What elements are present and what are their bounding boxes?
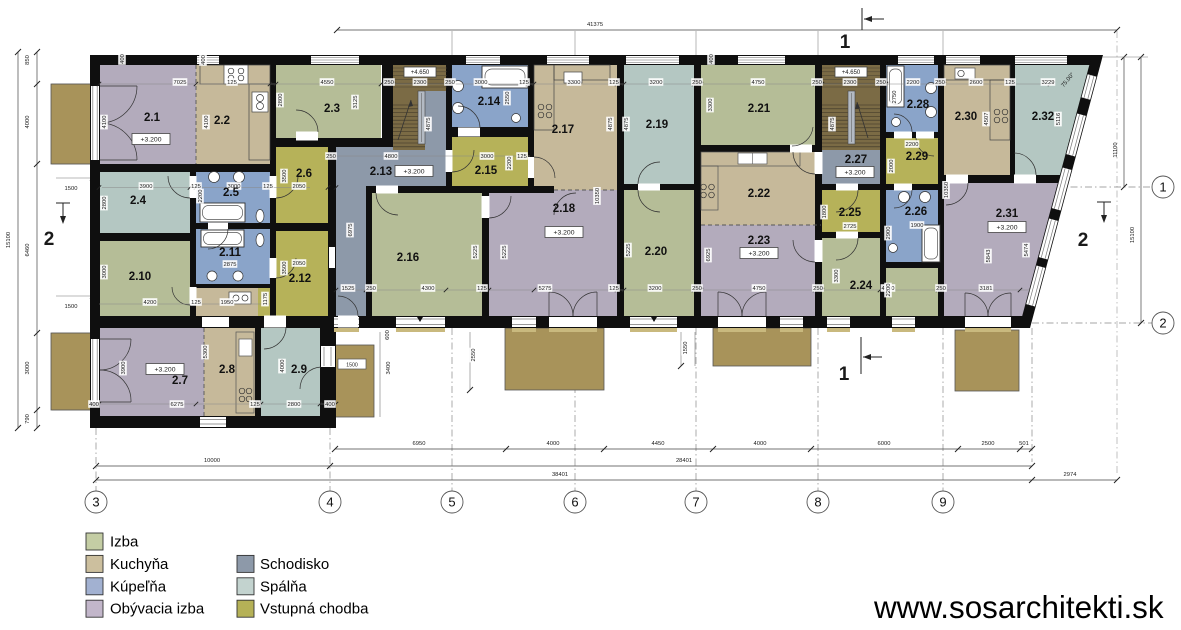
- svg-text:6275: 6275: [171, 402, 184, 408]
- svg-text:28401: 28401: [676, 458, 692, 464]
- svg-text:2.13: 2.13: [370, 166, 392, 178]
- svg-text:4450: 4450: [652, 441, 665, 447]
- svg-text:850: 850: [25, 55, 31, 65]
- svg-text:3400: 3400: [386, 362, 392, 375]
- svg-text:2.32: 2.32: [1032, 111, 1054, 123]
- svg-text:2.19: 2.19: [646, 119, 668, 131]
- svg-text:250: 250: [876, 80, 886, 86]
- svg-text:2.21: 2.21: [748, 103, 771, 115]
- svg-text:501: 501: [1019, 441, 1029, 447]
- svg-text:2300: 2300: [844, 80, 857, 86]
- svg-text:2: 2: [1159, 316, 1166, 331]
- svg-text:400: 400: [201, 55, 207, 65]
- svg-text:2800: 2800: [102, 197, 108, 210]
- svg-text:6000: 6000: [878, 441, 891, 447]
- svg-text:2.1: 2.1: [144, 112, 161, 124]
- svg-text:2.5: 2.5: [223, 187, 240, 199]
- svg-text:www.sosarchitekti.sk: www.sosarchitekti.sk: [873, 590, 1164, 625]
- svg-text:3: 3: [92, 495, 99, 510]
- svg-text:+3.200: +3.200: [155, 366, 176, 373]
- svg-text:2800: 2800: [288, 402, 301, 408]
- svg-text:1: 1: [1159, 180, 1166, 195]
- svg-text:2550: 2550: [505, 92, 511, 105]
- svg-text:2200: 2200: [907, 80, 920, 86]
- svg-text:Vstupná chodba: Vstupná chodba: [260, 601, 369, 618]
- svg-text:125: 125: [191, 300, 201, 306]
- svg-text:2200: 2200: [886, 284, 892, 297]
- svg-text:125: 125: [519, 80, 529, 86]
- svg-text:6460: 6460: [25, 244, 31, 257]
- svg-text:125: 125: [1005, 80, 1015, 86]
- svg-text:4875: 4875: [624, 118, 630, 131]
- svg-text:5225: 5225: [502, 246, 508, 259]
- svg-text:790: 790: [25, 414, 31, 424]
- svg-text:4875: 4875: [608, 118, 614, 131]
- svg-text:2.22: 2.22: [748, 188, 770, 200]
- svg-text:1: 1: [840, 32, 851, 53]
- svg-text:2500: 2500: [982, 441, 995, 447]
- svg-text:1950: 1950: [221, 300, 234, 306]
- svg-text:11100: 11100: [1113, 142, 1119, 157]
- svg-text:2: 2: [1078, 230, 1089, 251]
- svg-text:400: 400: [120, 54, 126, 64]
- svg-text:2.23: 2.23: [748, 235, 770, 247]
- svg-text:15100: 15100: [6, 232, 12, 248]
- svg-text:6975: 6975: [348, 224, 354, 237]
- svg-text:4000: 4000: [547, 441, 560, 447]
- svg-text:4875: 4875: [426, 118, 432, 131]
- svg-text:2.8: 2.8: [219, 364, 236, 376]
- svg-text:10350: 10350: [944, 182, 950, 198]
- svg-text:2.18: 2.18: [553, 203, 576, 215]
- svg-text:2.4: 2.4: [130, 195, 147, 207]
- svg-text:125: 125: [609, 80, 619, 86]
- svg-text:9: 9: [939, 495, 946, 510]
- svg-text:+3.200: +3.200: [404, 168, 425, 175]
- svg-text:2.25: 2.25: [839, 207, 862, 219]
- svg-text:2.3: 2.3: [324, 103, 340, 115]
- svg-text:4100: 4100: [102, 116, 108, 129]
- svg-text:3125: 3125: [353, 96, 359, 109]
- svg-text:250: 250: [692, 286, 702, 292]
- svg-text:400: 400: [325, 402, 335, 408]
- svg-text:2900: 2900: [886, 227, 892, 240]
- svg-text:125: 125: [609, 286, 619, 292]
- svg-text:2725: 2725: [844, 224, 857, 230]
- svg-text:125: 125: [517, 154, 527, 160]
- svg-text:4000: 4000: [754, 441, 767, 447]
- svg-text:4000: 4000: [25, 116, 31, 129]
- svg-text:2.17: 2.17: [552, 124, 574, 136]
- svg-text:250: 250: [366, 286, 376, 292]
- svg-text:4300: 4300: [422, 286, 435, 292]
- svg-text:1525: 1525: [342, 286, 355, 292]
- svg-text:2800: 2800: [278, 94, 284, 107]
- svg-text:2050: 2050: [293, 184, 306, 190]
- svg-text:2.6: 2.6: [296, 168, 312, 180]
- svg-text:5225: 5225: [626, 244, 632, 257]
- svg-text:1550: 1550: [683, 342, 689, 355]
- svg-text:3300: 3300: [708, 99, 714, 112]
- svg-text:5: 5: [448, 495, 455, 510]
- svg-text:2.2: 2.2: [214, 115, 230, 127]
- svg-text:1500: 1500: [65, 304, 78, 310]
- svg-text:Izba: Izba: [110, 534, 139, 551]
- svg-text:5474: 5474: [1024, 243, 1030, 257]
- svg-text:2200: 2200: [507, 157, 513, 170]
- svg-text:400: 400: [89, 402, 99, 408]
- svg-text:2974: 2974: [1064, 472, 1078, 478]
- svg-text:7025: 7025: [174, 80, 187, 86]
- svg-text:Kuchyňa: Kuchyňa: [110, 556, 169, 573]
- svg-text:2875: 2875: [224, 262, 237, 268]
- svg-text:5300: 5300: [203, 346, 209, 359]
- svg-text:600: 600: [385, 330, 391, 340]
- svg-text:2.14: 2.14: [478, 96, 501, 108]
- svg-text:6950: 6950: [413, 441, 426, 447]
- svg-text:2.26: 2.26: [905, 206, 927, 218]
- svg-text:3000: 3000: [481, 154, 494, 160]
- svg-text:5275: 5275: [539, 286, 552, 292]
- svg-text:3500: 3500: [282, 262, 288, 275]
- svg-text:2.10: 2.10: [129, 271, 151, 283]
- svg-text:1800: 1800: [822, 206, 828, 219]
- svg-text:+3.200: +3.200: [749, 250, 770, 257]
- svg-text:250: 250: [692, 80, 702, 86]
- svg-text:2200: 2200: [198, 190, 204, 203]
- svg-text:125: 125: [250, 402, 260, 408]
- svg-text:2.20: 2.20: [645, 246, 667, 258]
- svg-text:4200: 4200: [144, 300, 157, 306]
- svg-text:3000: 3000: [25, 362, 31, 375]
- svg-text:15100: 15100: [1130, 227, 1136, 243]
- svg-text:4550: 4550: [321, 80, 334, 86]
- svg-text:2.24: 2.24: [850, 280, 873, 292]
- svg-text:4875: 4875: [830, 118, 836, 131]
- svg-text:+3.200: +3.200: [141, 136, 162, 143]
- svg-text:+4.650: +4.650: [842, 70, 861, 76]
- svg-text:2: 2: [44, 229, 55, 250]
- svg-text:2750: 2750: [892, 91, 898, 104]
- svg-text:3181: 3181: [980, 286, 993, 292]
- svg-text:2.12: 2.12: [289, 273, 311, 285]
- svg-text:400: 400: [709, 54, 715, 64]
- svg-text:3200: 3200: [650, 80, 663, 86]
- svg-text:10350: 10350: [595, 188, 601, 204]
- svg-text:250: 250: [813, 286, 823, 292]
- svg-text:2.16: 2.16: [397, 252, 419, 264]
- svg-text:3900: 3900: [140, 184, 153, 190]
- svg-text:Obývacia izba: Obývacia izba: [110, 601, 205, 618]
- svg-text:3300: 3300: [568, 80, 581, 86]
- svg-text:4100: 4100: [204, 116, 210, 129]
- svg-text:4750: 4750: [753, 286, 766, 292]
- svg-text:6925: 6925: [706, 249, 712, 262]
- svg-text:1175: 1175: [263, 293, 269, 305]
- svg-text:1500: 1500: [65, 186, 78, 192]
- svg-text:2.27: 2.27: [845, 154, 867, 166]
- svg-text:41375: 41375: [587, 22, 603, 28]
- svg-text:2550: 2550: [471, 349, 477, 362]
- svg-text:250: 250: [326, 154, 336, 160]
- svg-text:2.28: 2.28: [907, 99, 930, 111]
- svg-text:125: 125: [227, 80, 237, 86]
- svg-text:4800: 4800: [385, 154, 398, 160]
- svg-text:Spálňa: Spálňa: [260, 578, 307, 595]
- svg-text:3500: 3500: [282, 170, 288, 183]
- svg-text:+3.200: +3.200: [845, 169, 866, 176]
- svg-text:250: 250: [935, 80, 945, 86]
- svg-text:10000: 10000: [204, 458, 220, 464]
- svg-text:2600: 2600: [970, 80, 983, 86]
- svg-text:2000: 2000: [889, 160, 895, 173]
- svg-text:3200: 3200: [649, 286, 662, 292]
- svg-text:8: 8: [814, 495, 821, 510]
- svg-text:+3.200: +3.200: [997, 224, 1018, 231]
- svg-text:3229: 3229: [1042, 80, 1055, 86]
- svg-text:3900: 3900: [121, 362, 127, 375]
- svg-text:4: 4: [326, 495, 333, 510]
- svg-text:125: 125: [477, 286, 487, 292]
- svg-text:250: 250: [812, 80, 822, 86]
- svg-text:3000: 3000: [102, 266, 108, 279]
- svg-text:5843: 5843: [986, 250, 992, 263]
- svg-text:2050: 2050: [293, 261, 306, 267]
- svg-text:1500: 1500: [346, 363, 358, 369]
- svg-text:5225: 5225: [473, 246, 479, 259]
- svg-text:1900: 1900: [911, 223, 924, 229]
- svg-text:3300: 3300: [834, 270, 840, 283]
- svg-text:250: 250: [384, 80, 394, 86]
- svg-text:3000: 3000: [475, 80, 488, 86]
- svg-text:5116: 5116: [1056, 113, 1062, 125]
- svg-text:2.9: 2.9: [291, 364, 307, 376]
- svg-text:2.31: 2.31: [996, 208, 1019, 220]
- svg-text:2.7: 2.7: [172, 375, 188, 387]
- svg-text:Kúpeľňa: Kúpeľňa: [110, 578, 167, 595]
- svg-text:Schodisko: Schodisko: [260, 556, 329, 573]
- svg-text:250: 250: [936, 286, 946, 292]
- svg-text:4507: 4507: [984, 113, 990, 126]
- svg-text:7: 7: [692, 495, 699, 510]
- svg-text:4750: 4750: [752, 80, 765, 86]
- svg-text:38401: 38401: [552, 472, 568, 478]
- svg-text:2.15: 2.15: [475, 165, 498, 177]
- svg-text:2200: 2200: [906, 142, 919, 148]
- svg-text:+4.650: +4.650: [411, 70, 430, 76]
- svg-text:+3.200: +3.200: [554, 229, 575, 236]
- svg-text:2300: 2300: [414, 80, 427, 86]
- svg-text:250: 250: [445, 80, 455, 86]
- svg-text:1: 1: [839, 364, 850, 385]
- svg-text:6: 6: [571, 495, 578, 510]
- svg-text:2.29: 2.29: [906, 151, 928, 163]
- svg-text:2.11: 2.11: [219, 247, 241, 259]
- svg-text:4000: 4000: [280, 360, 286, 373]
- svg-text:2.30: 2.30: [955, 111, 977, 123]
- svg-text:125: 125: [263, 184, 273, 190]
